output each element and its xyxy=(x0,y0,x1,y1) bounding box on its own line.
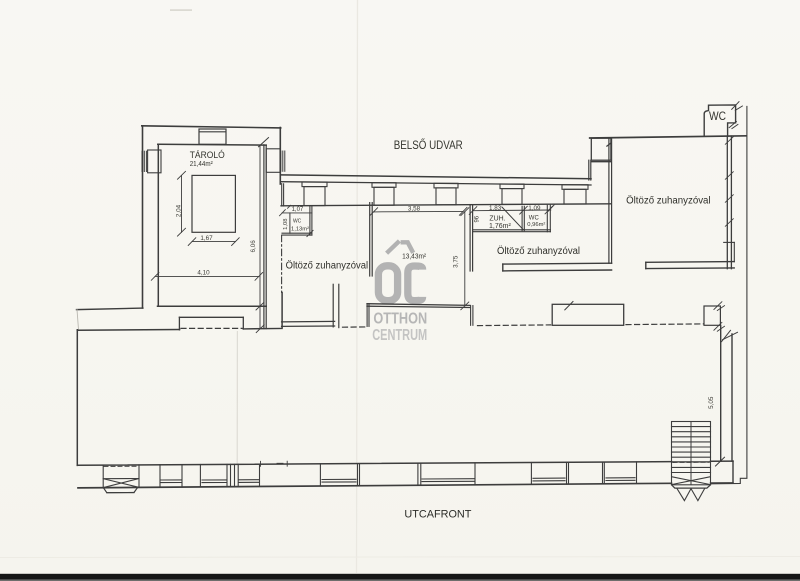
svg-text:TÁROLÓ: TÁROLÓ xyxy=(190,150,225,161)
svg-text:2,04: 2,04 xyxy=(175,204,182,217)
svg-text:Öltöző zuhanyzóval: Öltöző zuhanyzóval xyxy=(497,245,580,257)
svg-text:6,06: 6,06 xyxy=(250,240,257,253)
svg-text:1,07: 1,07 xyxy=(292,207,304,213)
svg-text:OTTHON: OTTHON xyxy=(373,311,427,328)
svg-text:CENTRUM: CENTRUM xyxy=(372,327,427,344)
svg-text:ZUH.: ZUH. xyxy=(489,214,505,223)
svg-text:3,58: 3,58 xyxy=(408,205,421,212)
svg-text:WC: WC xyxy=(709,111,726,123)
svg-text:1,83: 1,83 xyxy=(489,205,502,212)
svg-text:1,09: 1,09 xyxy=(528,205,541,212)
svg-text:4,10: 4,10 xyxy=(197,269,210,276)
svg-text:WC: WC xyxy=(529,215,540,221)
svg-text:3,75: 3,75 xyxy=(453,255,460,268)
svg-text:1,13m²: 1,13m² xyxy=(291,227,309,233)
svg-text:Öltöző zuhanyzóval: Öltöző zuhanyzóval xyxy=(286,260,369,272)
svg-text:BELSŐ UDVAR: BELSŐ UDVAR xyxy=(394,138,463,152)
svg-text:UTCAFRONT: UTCAFRONT xyxy=(404,509,471,521)
svg-text:1,08: 1,08 xyxy=(283,219,289,230)
svg-text:0,96m²: 0,96m² xyxy=(527,222,545,228)
svg-text:1,67: 1,67 xyxy=(200,235,213,242)
svg-text:1,76m²: 1,76m² xyxy=(489,223,511,230)
svg-text:13,43m²: 13,43m² xyxy=(402,252,427,261)
svg-text:WC: WC xyxy=(293,219,301,225)
svg-text:5,05: 5,05 xyxy=(708,396,715,409)
svg-text:Öltöző zuhanyzóval: Öltöző zuhanyzóval xyxy=(626,195,711,207)
svg-text:96: 96 xyxy=(474,215,480,222)
svg-text:21,44m²: 21,44m² xyxy=(190,161,214,168)
